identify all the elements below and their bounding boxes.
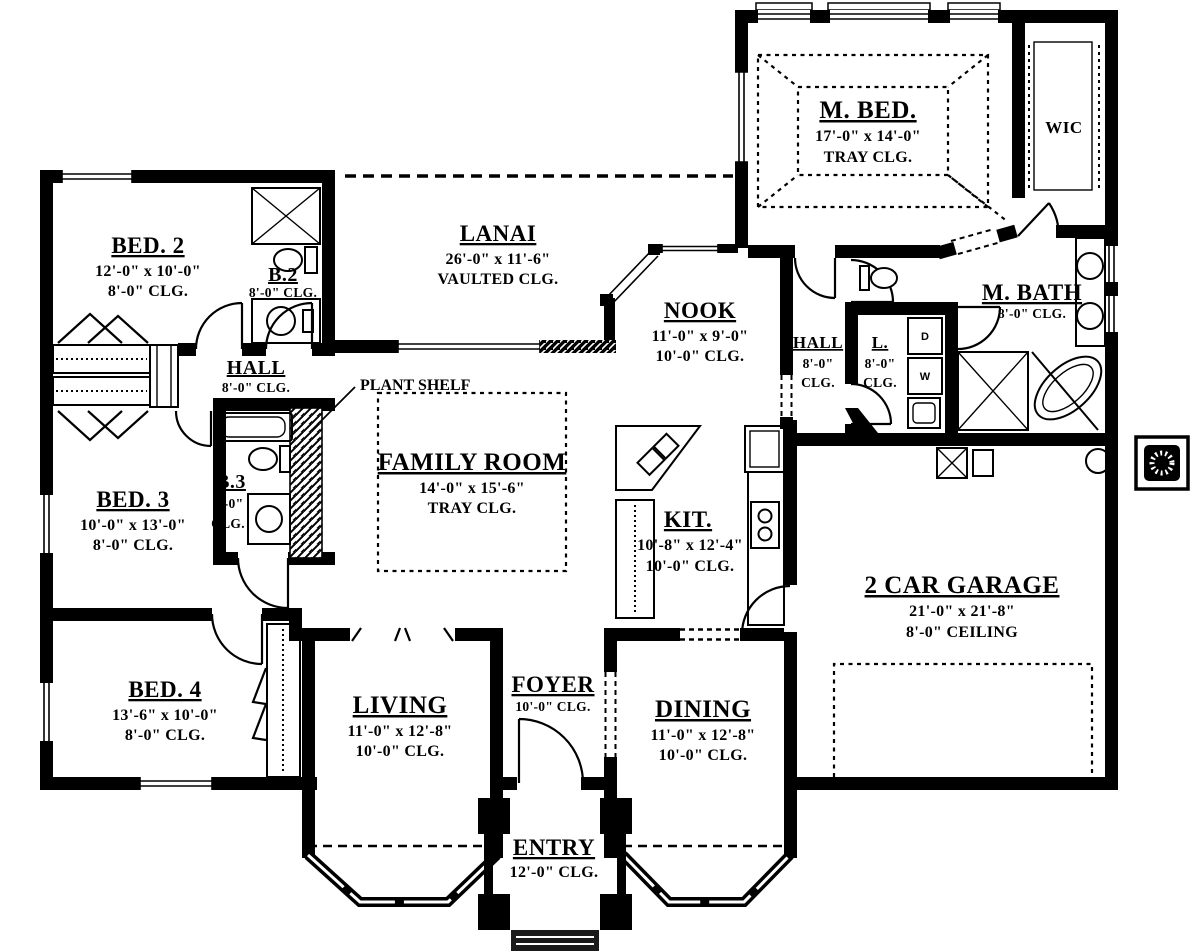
bed2-window [62, 170, 132, 183]
svg-text:8'-0" CLG.: 8'-0" CLG. [108, 283, 188, 300]
svg-text:CLG.: CLG. [863, 375, 897, 390]
svg-text:12'-0" x 10'-0": 12'-0" x 10'-0" [95, 263, 201, 280]
svg-text:ENTRY: ENTRY [513, 835, 595, 860]
svg-text:NOOK: NOOK [664, 298, 736, 323]
room-label-master-bedroom: M. BED. 17'-0" x 14'-0" TRAY CLG. [815, 97, 921, 166]
toilet [860, 266, 897, 290]
svg-text:8'-0": 8'-0" [213, 496, 244, 511]
svg-text:BED. 3: BED. 3 [96, 487, 169, 512]
svg-text:8'-0" CLG.: 8'-0" CLG. [93, 537, 173, 554]
room-label-hall-west: HALL 8'-0" CLG. [222, 357, 290, 395]
svg-text:8'-0" CLG.: 8'-0" CLG. [998, 306, 1066, 321]
svg-text:21'-0" x 21'-8": 21'-0" x 21'-8" [909, 603, 1015, 620]
svg-text:8'-0" CLG.: 8'-0" CLG. [249, 285, 317, 300]
bed4-window [140, 777, 212, 790]
master-bath-window-2 [1105, 296, 1118, 332]
svg-text:2 CAR GARAGE: 2 CAR GARAGE [865, 572, 1060, 599]
svg-text:13'-6" x 10'-0": 13'-6" x 10'-0" [112, 707, 218, 724]
master-bath-window-1 [1105, 246, 1118, 282]
family-room-window [398, 340, 540, 353]
svg-text:M. BED.: M. BED. [819, 97, 916, 124]
svg-text:TRAY CLG.: TRAY CLG. [824, 149, 913, 166]
svg-text:HALL: HALL [227, 357, 286, 379]
svg-text:10'-0" CLG.: 10'-0" CLG. [515, 699, 590, 714]
svg-text:BED. 2: BED. 2 [111, 233, 184, 258]
svg-text:10'-8" x 12'-4": 10'-8" x 12'-4" [637, 537, 743, 554]
svg-text:FOYER: FOYER [512, 672, 595, 697]
room-label-dining: DINING 11'-0" x 12'-8" 10'-0" CLG. [651, 696, 756, 764]
floor-plan-drawing: PLANT SHELF D W [0, 0, 1200, 951]
room-label-entry: ENTRY 12'-0" CLG. [510, 835, 599, 881]
svg-text:B.2: B.2 [268, 264, 298, 286]
svg-text:11'-0" x 12'-8": 11'-0" x 12'-8" [651, 727, 756, 744]
svg-text:L.: L. [872, 333, 889, 352]
room-label-foyer: FOYER 10'-0" CLG. [512, 672, 595, 714]
svg-text:26'-0" x 11'-6": 26'-0" x 11'-6" [446, 251, 551, 268]
bed3-window [40, 495, 53, 553]
svg-text:HALL: HALL [793, 333, 843, 352]
master-window-3 [948, 3, 1000, 23]
svg-text:KIT.: KIT. [664, 507, 712, 532]
svg-text:10'-0" CLG.: 10'-0" CLG. [659, 747, 748, 764]
entry-stoop [511, 930, 599, 951]
nook-top-window [662, 244, 718, 253]
svg-text:8'-0" CLG.: 8'-0" CLG. [222, 380, 290, 395]
room-label-wic: WIC [1045, 118, 1082, 137]
svg-text:CLG.: CLG. [801, 375, 835, 390]
svg-text:FAMILY ROOM: FAMILY ROOM [378, 449, 567, 476]
svg-text:BED. 4: BED. 4 [128, 677, 201, 702]
lanai-slider-door [540, 340, 616, 353]
floor-plan-sheet: PLANT SHELF D W [0, 0, 1200, 951]
svg-text:12'-0" CLG.: 12'-0" CLG. [510, 864, 599, 881]
svg-text:11'-0" x 12'-8": 11'-0" x 12'-8" [348, 723, 453, 740]
svg-text:M. BATH: M. BATH [982, 280, 1082, 305]
room-label-living: LIVING 11'-0" x 12'-8" 10'-0" CLG. [348, 692, 453, 760]
svg-text:10'-0" CLG.: 10'-0" CLG. [646, 558, 735, 575]
svg-text:17'-0" x 14'-0": 17'-0" x 14'-0" [815, 128, 921, 145]
svg-text:8'-0" CEILING: 8'-0" CEILING [906, 624, 1018, 641]
svg-text:8'-0": 8'-0" [803, 356, 834, 371]
toilet-compartment-fixtures [860, 266, 897, 290]
bed4-side-window [40, 683, 53, 741]
svg-text:LANAI: LANAI [460, 221, 537, 246]
svg-text:B.3: B.3 [216, 471, 246, 493]
nook-hall-opening [780, 375, 793, 417]
plant-shelf-label: PLANT SHELF [360, 377, 471, 394]
washer-label: W [920, 371, 931, 383]
master-window-2 [828, 3, 930, 23]
toilet [249, 446, 290, 472]
svg-text:VAULTED CLG.: VAULTED CLG. [438, 271, 559, 288]
svg-text:DINING: DINING [655, 696, 751, 723]
svg-text:10'-0" x 13'-0": 10'-0" x 13'-0" [80, 517, 186, 534]
svg-text:8'-0" CLG.: 8'-0" CLG. [125, 727, 205, 744]
svg-text:11'-0" x 9'-0": 11'-0" x 9'-0" [652, 328, 749, 345]
dryer-label: D [921, 331, 929, 343]
ac-pad [1136, 437, 1188, 489]
svg-text:10'-0" CLG.: 10'-0" CLG. [656, 348, 745, 365]
svg-text:8'-0": 8'-0" [865, 356, 896, 371]
svg-text:LIVING: LIVING [353, 692, 448, 719]
foyer-dining-opening [604, 672, 617, 757]
svg-text:14'-0" x 15'-6": 14'-0" x 15'-6" [419, 480, 525, 497]
svg-text:TRAY CLG.: TRAY CLG. [428, 500, 517, 517]
svg-text:WIC: WIC [1045, 118, 1082, 137]
room-label-nook: NOOK 11'-0" x 9'-0" 10'-0" CLG. [652, 298, 749, 365]
svg-text:10'-0" CLG.: 10'-0" CLG. [356, 743, 445, 760]
master-window-1 [756, 3, 812, 23]
svg-text:CLG.: CLG. [211, 516, 245, 531]
master-side-window [735, 72, 748, 162]
room-label-bath3: B.3 8'-0" CLG. [211, 471, 246, 531]
